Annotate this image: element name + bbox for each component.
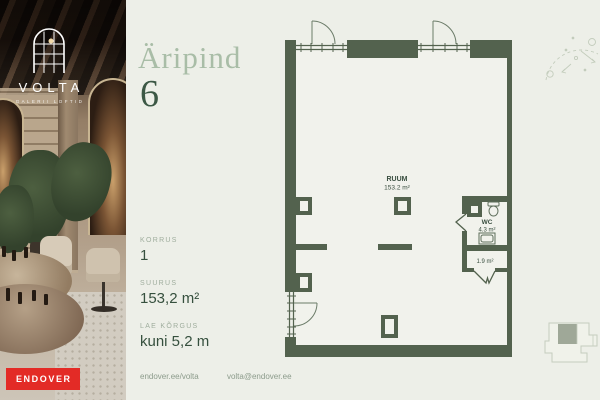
- photo-bottle: [18, 292, 22, 304]
- photo-chair-stem: [102, 282, 105, 308]
- detail-label: KORRUS: [140, 237, 270, 244]
- photo-bottle: [32, 290, 36, 301]
- website-link[interactable]: endover.ee/volta: [140, 372, 199, 381]
- endover-badge: ENDOVER: [6, 368, 80, 390]
- volta-logo-text: VOLTA: [10, 80, 88, 95]
- brochure-page: VOLTA GALERII LOFTID ENDOVER Äripind 6 K…: [0, 0, 600, 400]
- photo-bottle: [12, 250, 16, 261]
- detail-label: LAE KÕRGUS: [140, 323, 270, 330]
- photo-bottle: [24, 247, 28, 258]
- photo-bottle: [44, 294, 48, 305]
- listing-details: KORRUS 1 SUURUS 153,2 m² LAE KÕRGUS kuni…: [140, 237, 270, 366]
- compass-icon: [540, 18, 600, 96]
- room-label: RUUM: [387, 176, 408, 183]
- volta-logo: VOLTA GALERII LOFTID: [10, 28, 88, 104]
- detail-row-lae-korgus: LAE KÕRGUS kuni 5,2 m: [140, 323, 270, 350]
- wc-area-label: 4.3 m²: [478, 228, 495, 234]
- contact-footer: endover.ee/volta volta@endover.ee: [140, 372, 318, 381]
- room-area-label: 153.2 m²: [384, 185, 410, 192]
- detail-value: kuni 5,2 m: [140, 333, 270, 350]
- floorplan-interior: [296, 44, 507, 345]
- detail-label: SUURUS: [140, 280, 270, 287]
- unit-number: 6: [140, 72, 159, 116]
- photo-bottle: [6, 288, 10, 301]
- photo-chair: [86, 248, 120, 282]
- photo-bottle: [2, 246, 6, 257]
- vestibule-area-label: 1.9 m²: [476, 259, 493, 265]
- detail-row-suurus: SUURUS 153,2 m²: [140, 280, 270, 307]
- window-arch-icon: [31, 28, 67, 74]
- detail-row-korrus: KORRUS 1: [140, 237, 270, 264]
- wc-label: WC: [482, 219, 493, 226]
- unit-highlight: [558, 324, 577, 344]
- page-title: Äripind: [138, 40, 241, 76]
- volta-logo-subtitle: GALERII LOFTID: [10, 99, 88, 104]
- detail-value: 153,2 m²: [140, 290, 270, 307]
- interior-photo: VOLTA GALERII LOFTID ENDOVER: [0, 0, 126, 400]
- detail-value: 1: [140, 247, 270, 264]
- email-link[interactable]: volta@endover.ee: [227, 372, 292, 381]
- photo-chair-base: [91, 306, 117, 312]
- building-locator-icon: [538, 315, 600, 365]
- floorplan: RUUM 153.2 m² WC 4.3 m² 1.9 m²: [280, 14, 520, 366]
